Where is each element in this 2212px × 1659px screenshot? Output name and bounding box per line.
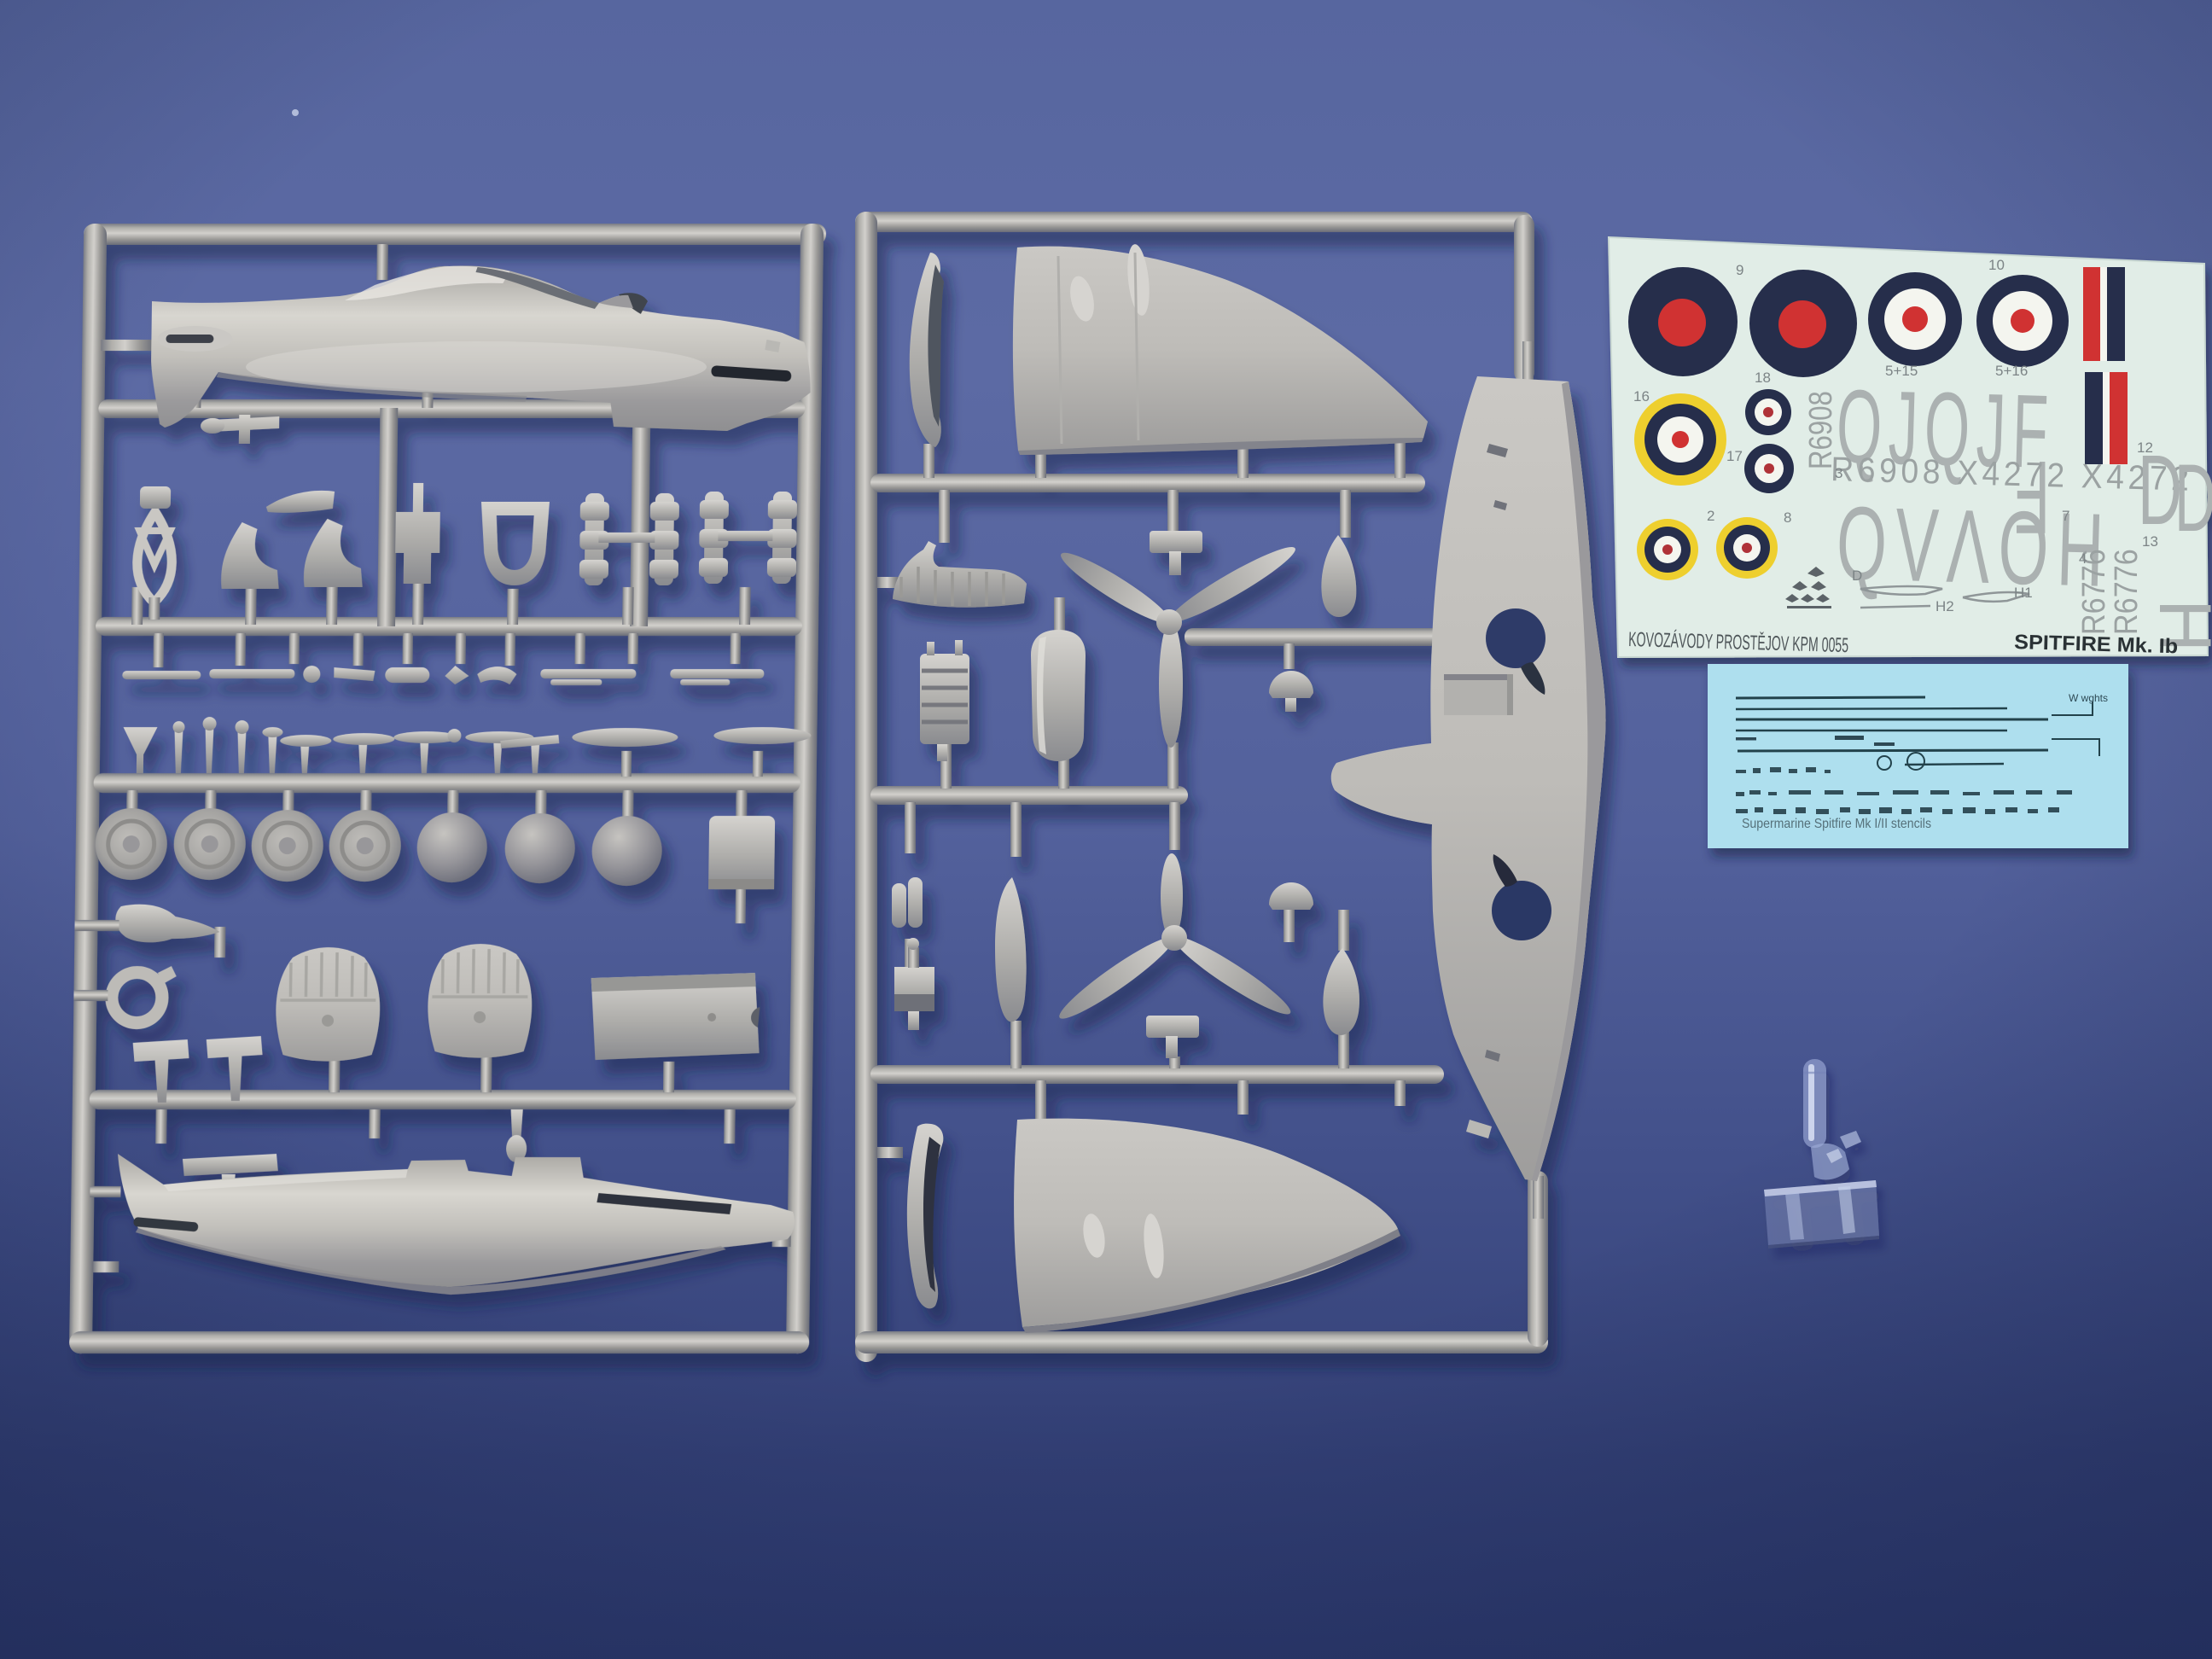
svg-text:QVΛOH: QVΛOH bbox=[1835, 484, 2114, 608]
svg-text:8: 8 bbox=[1784, 509, 1791, 526]
svg-text:17: 17 bbox=[1726, 448, 1743, 464]
svg-text:4: 4 bbox=[2079, 550, 2087, 567]
svg-text:5+16: 5+16 bbox=[1995, 363, 2028, 379]
svg-text:5+15: 5+15 bbox=[1885, 363, 1918, 379]
svg-text:13: 13 bbox=[2142, 533, 2158, 550]
svg-text:Supermarine Spitfire Mk I/II s: Supermarine Spitfire Mk I/II stencils bbox=[1742, 817, 1931, 831]
svg-text:H2: H2 bbox=[1935, 598, 1954, 614]
svg-text:12: 12 bbox=[2137, 439, 2153, 456]
svg-text:D: D bbox=[1852, 568, 1862, 584]
svg-text:3: 3 bbox=[1835, 465, 1842, 481]
svg-text:SPITFIRE Mk. Ib: SPITFIRE Mk. Ib bbox=[2014, 631, 2179, 658]
svg-text:H1: H1 bbox=[2014, 585, 2033, 601]
svg-text:2: 2 bbox=[1707, 508, 1714, 524]
svg-text:7: 7 bbox=[2062, 508, 2069, 524]
svg-text:W wghts: W wghts bbox=[2069, 692, 2108, 704]
svg-text:16: 16 bbox=[1633, 388, 1650, 405]
svg-text:10: 10 bbox=[1988, 257, 2005, 273]
svg-text:R6776: R6776 bbox=[2107, 549, 2144, 635]
svg-text:18: 18 bbox=[1755, 370, 1771, 386]
svg-text:D: D bbox=[2174, 444, 2212, 551]
svg-text:9: 9 bbox=[1736, 262, 1743, 278]
